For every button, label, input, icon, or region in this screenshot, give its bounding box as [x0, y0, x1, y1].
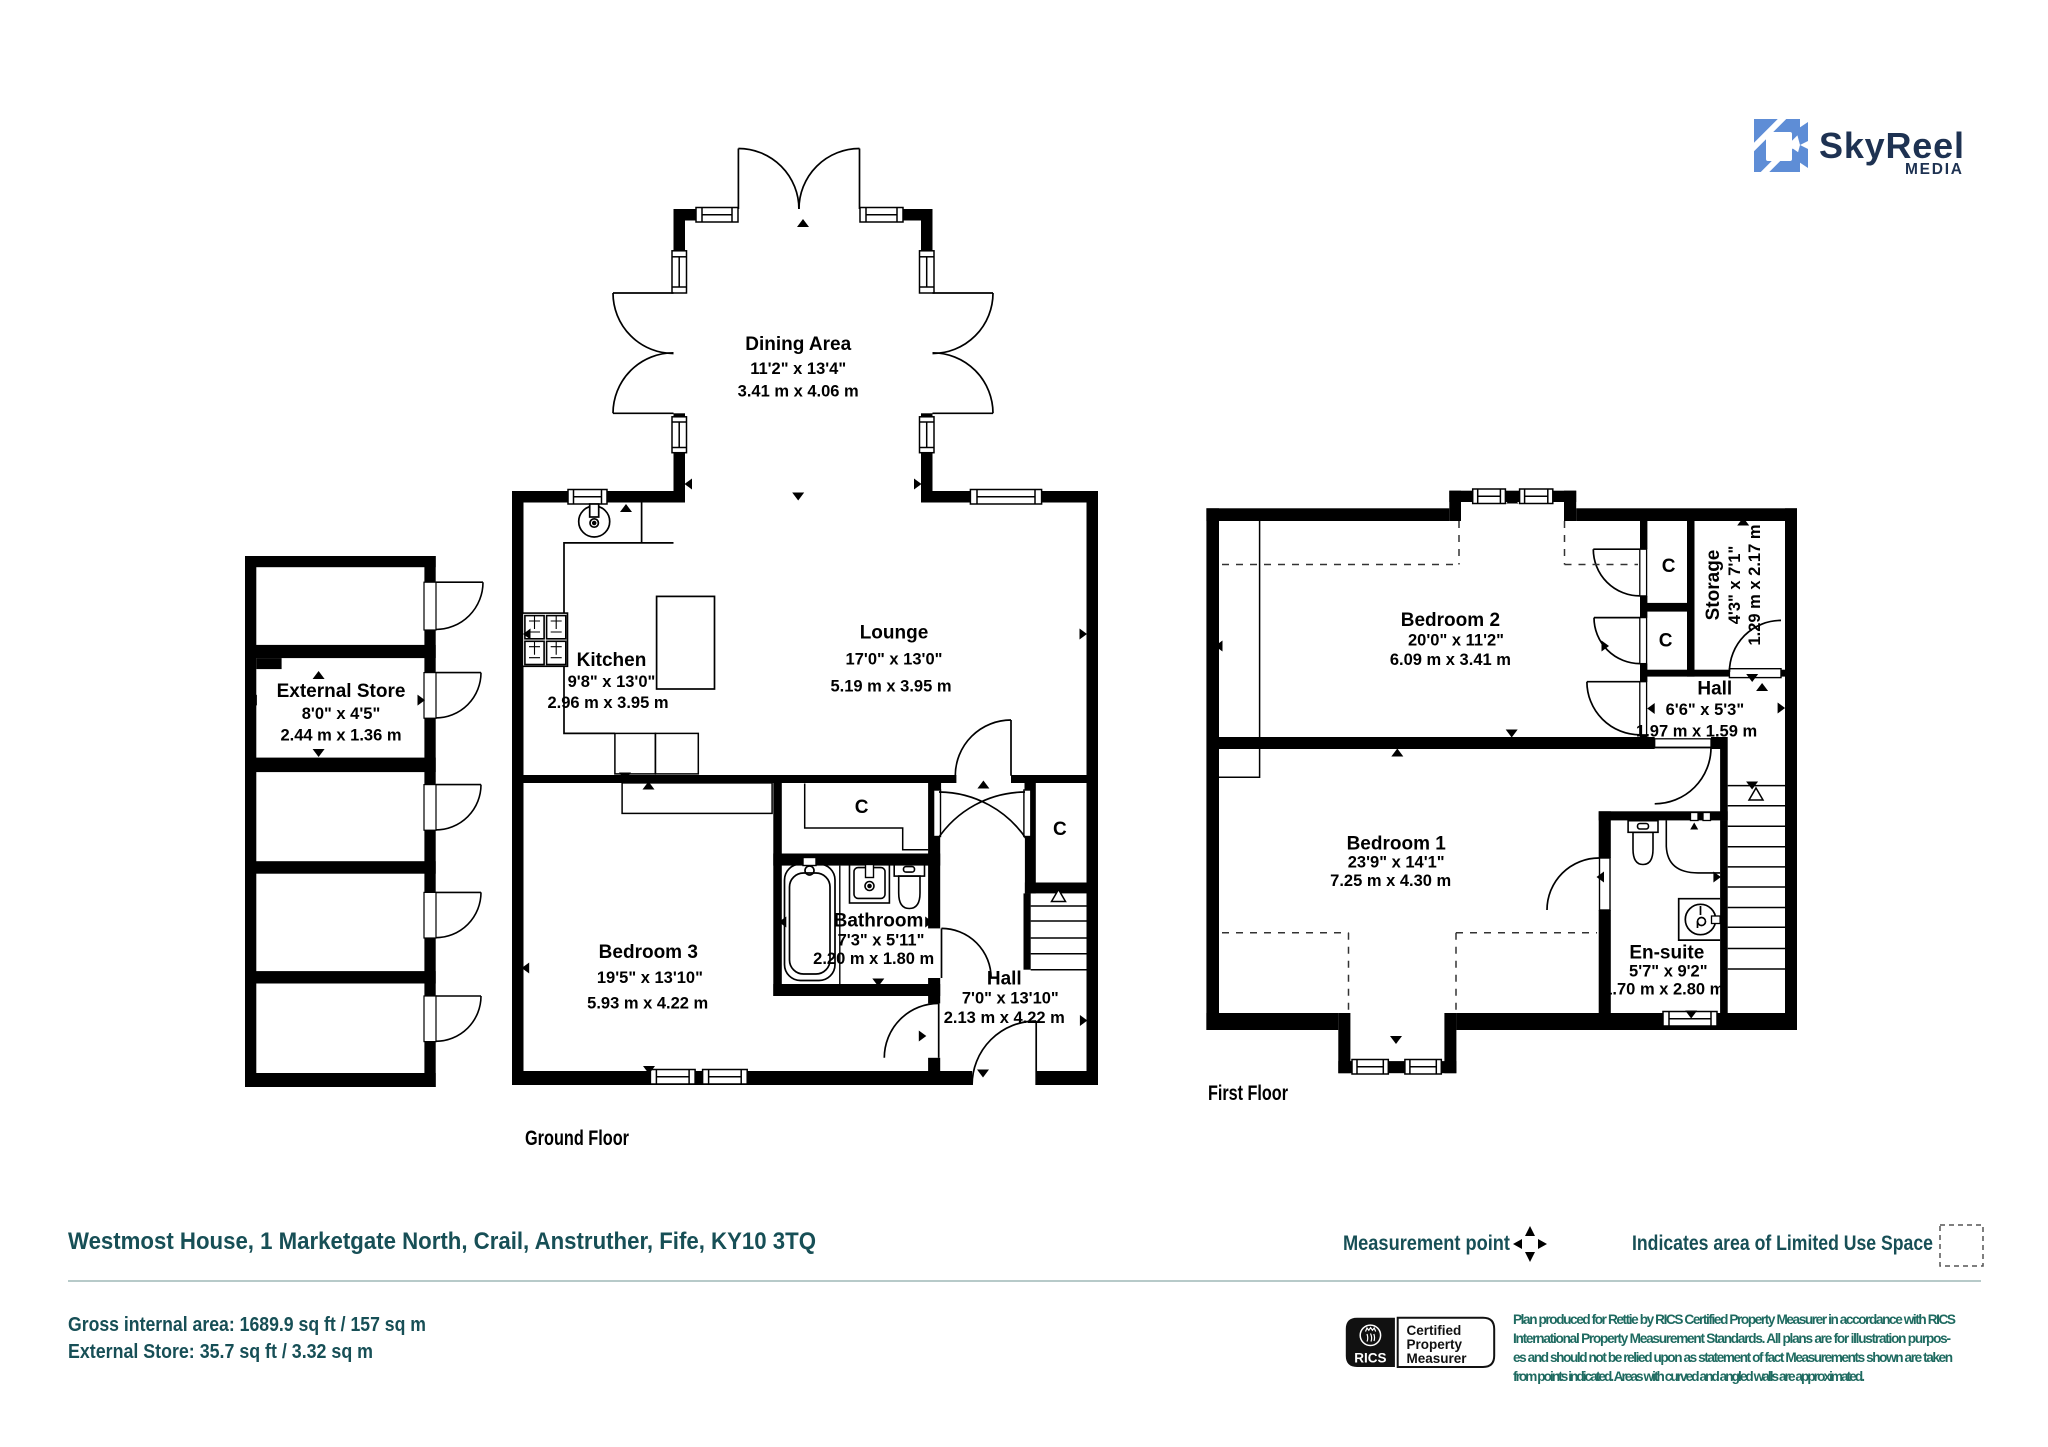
- svg-text:C: C: [1053, 819, 1067, 840]
- svg-text:Bedroom 3: Bedroom 3: [599, 942, 698, 963]
- svg-text:C: C: [1659, 631, 1673, 652]
- svg-text:Certified: Certified: [1407, 1323, 1462, 1338]
- svg-text:External Store: External Store: [277, 681, 406, 702]
- svg-text:Measurer: Measurer: [1407, 1351, 1468, 1366]
- svg-text:First Floor: First Floor: [1208, 1082, 1288, 1105]
- svg-text:6.09 m x 3.41 m: 6.09 m x 3.41 m: [1390, 651, 1511, 669]
- svg-text:6'6" x 5'3": 6'6" x 5'3": [1666, 701, 1745, 719]
- svg-text:Measurement point: Measurement point: [1343, 1231, 1510, 1255]
- svg-text:5.19 m x 3.95 m: 5.19 m x 3.95 m: [830, 678, 951, 696]
- svg-text:Dining Area: Dining Area: [745, 334, 851, 355]
- svg-text:4'3" x 7'1": 4'3" x 7'1": [1726, 546, 1744, 625]
- svg-text:8'0" x 4'5": 8'0" x 4'5": [302, 705, 381, 723]
- svg-text:11'2" x 13'4": 11'2" x 13'4": [750, 360, 846, 378]
- svg-text:SkyReel: SkyReel: [1819, 125, 1964, 166]
- svg-text:Hall: Hall: [1697, 679, 1732, 700]
- svg-text:Westmost House, 1 Marketgate N: Westmost House, 1 Marketgate North, Crai…: [68, 1228, 816, 1255]
- svg-text:Indicates area of Limited Use: Indicates area of Limited Use Space: [1632, 1231, 1933, 1255]
- svg-text:2.13 m x 4.22 m: 2.13 m x 4.22 m: [944, 1009, 1065, 1027]
- svg-text:Bedroom 1: Bedroom 1: [1347, 834, 1447, 855]
- svg-text:C: C: [855, 797, 869, 818]
- svg-text:7'0" x 13'10": 7'0" x 13'10": [962, 990, 1059, 1008]
- svg-text:Bathroom: Bathroom: [834, 911, 924, 932]
- svg-text:2.96 m x 3.95 m: 2.96 m x 3.95 m: [547, 694, 668, 712]
- svg-text:19'5" x 13'10": 19'5" x 13'10": [597, 969, 703, 987]
- svg-text:1.29 m x 2.17 m: 1.29 m x 2.17 m: [1746, 524, 1764, 645]
- svg-text:2.44 m x 1.36 m: 2.44 m x 1.36 m: [280, 727, 401, 745]
- svg-text:5.93 m x 4.22 m: 5.93 m x 4.22 m: [587, 995, 708, 1013]
- svg-text:Ground Floor: Ground Floor: [525, 1127, 629, 1150]
- svg-text:Lounge: Lounge: [860, 623, 929, 644]
- svg-text:1.97 m x 1.59 m: 1.97 m x 1.59 m: [1636, 723, 1757, 741]
- svg-text:En-suite: En-suite: [1629, 943, 1704, 964]
- svg-text:23'9" x 14'1": 23'9" x 14'1": [1348, 854, 1445, 872]
- svg-text:17'0" x 13'0": 17'0" x 13'0": [846, 651, 943, 669]
- svg-text:Property: Property: [1407, 1337, 1463, 1352]
- svg-text:Bedroom 2: Bedroom 2: [1401, 610, 1500, 631]
- svg-text:es and should not be relied up: es and should not be relied upon as stat…: [1513, 1350, 1953, 1365]
- svg-text:5'7" x 9'2": 5'7" x 9'2": [1629, 963, 1708, 981]
- svg-text:7'3" x 5'11": 7'3" x 5'11": [838, 932, 925, 950]
- svg-text:Hall: Hall: [987, 969, 1022, 990]
- svg-text:Storage: Storage: [1703, 550, 1724, 621]
- svg-text:Kitchen: Kitchen: [577, 650, 647, 671]
- svg-text:9'8" x 13'0": 9'8" x 13'0": [568, 673, 656, 691]
- svg-text:7.25 m x 4.30 m: 7.25 m x 4.30 m: [1330, 872, 1451, 890]
- svg-text:1.70 m x 2.80 m: 1.70 m x 2.80 m: [1603, 981, 1724, 999]
- svg-text:C: C: [1662, 556, 1676, 577]
- svg-text:External Store: 35.7 sq ft / 3: External Store: 35.7 sq ft / 3.32 sq m: [68, 1340, 373, 1363]
- svg-text:RICS: RICS: [1354, 1351, 1386, 1366]
- svg-text:Gross internal area: 1689.9 sq: Gross internal area: 1689.9 sq ft / 157 …: [68, 1313, 426, 1336]
- svg-text:MEDIA: MEDIA: [1905, 161, 1962, 178]
- svg-text:International Property Measur: International Property Measurement Stand…: [1513, 1331, 1951, 1346]
- svg-text:20'0" x 11'2": 20'0" x 11'2": [1408, 632, 1504, 650]
- svg-text:3.41 m x 4.06 m: 3.41 m x 4.06 m: [738, 383, 859, 401]
- svg-text:Plan produced for Rettie by RI: Plan produced for Rettie by RICS Certifi…: [1513, 1312, 1956, 1327]
- svg-text:from points indicated. Areas w: from points indicated. Areas with curved…: [1513, 1369, 1865, 1384]
- svg-text:2.20 m x 1.80 m: 2.20 m x 1.80 m: [813, 950, 934, 968]
